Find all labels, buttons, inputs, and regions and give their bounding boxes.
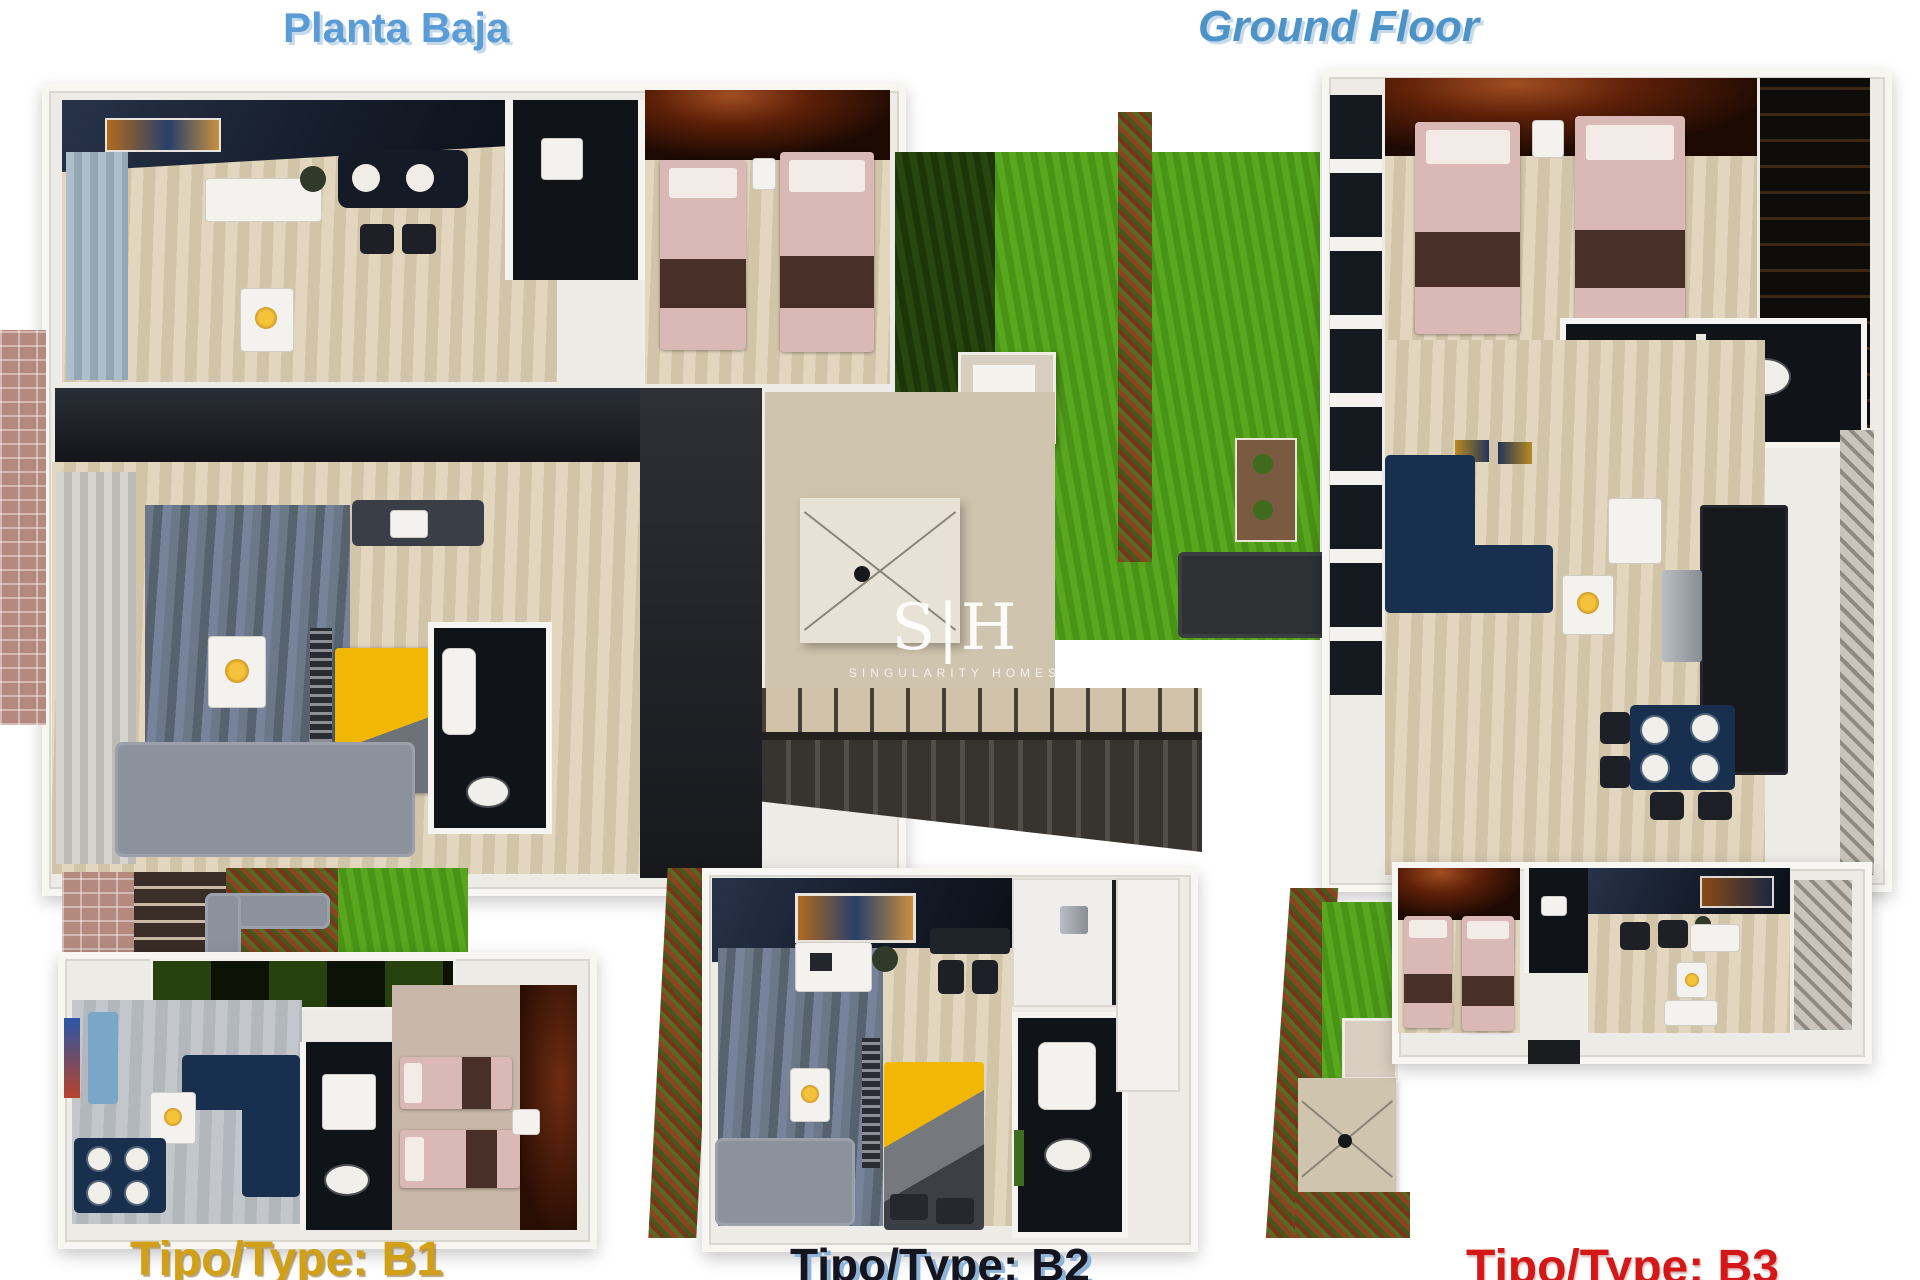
- basin-right: [406, 164, 434, 192]
- b3-bedroom-ceiling: [1398, 868, 1520, 920]
- b1-wall-art: [64, 1018, 80, 1098]
- bed-single: [1462, 916, 1514, 1031]
- bed-pillow: [1586, 125, 1674, 160]
- plate: [126, 1148, 148, 1170]
- window-band: [1330, 95, 1382, 695]
- fireplace-unit: [240, 288, 294, 352]
- b2-tv-art: [795, 893, 916, 943]
- bed-pillow: [1426, 130, 1510, 164]
- plan-b1-label: Tipo/Type: B1: [130, 1232, 443, 1280]
- bed-blanket: [1575, 230, 1685, 287]
- bed-pillow: [404, 1063, 422, 1103]
- bed-single: [660, 160, 746, 350]
- b2-shower: [1038, 1042, 1096, 1110]
- b2-slat-screen: [862, 1038, 880, 1168]
- plate: [1642, 717, 1668, 743]
- plate: [1642, 755, 1668, 781]
- bed-single: [1575, 116, 1685, 336]
- upper-bathroom: [505, 100, 646, 280]
- brand-name: SINGULARITY HOMES: [845, 666, 1065, 680]
- b2-wall-extension: [1116, 878, 1180, 1092]
- bed-pillow: [890, 1194, 928, 1220]
- umbrella-pole: [854, 566, 870, 582]
- potted-plant: [872, 946, 898, 972]
- fireplace-flame-icon: [164, 1108, 182, 1126]
- bed-blanket: [466, 1130, 497, 1188]
- laptop: [390, 510, 428, 538]
- b2-sofa: [715, 1138, 855, 1226]
- middle-corridor-roof: [55, 388, 640, 462]
- nightstand: [752, 158, 776, 190]
- bed-single: [1404, 916, 1452, 1028]
- dark-core-wall: [640, 388, 762, 878]
- upper-bedroom-ceiling: [645, 90, 890, 160]
- b1-bedroom-glow: [520, 985, 577, 1230]
- nightstand: [512, 1109, 540, 1135]
- toilet: [326, 1166, 368, 1194]
- b3-bench: [1664, 1000, 1718, 1026]
- fireplace-flame-icon: [801, 1085, 819, 1103]
- b1-outdoor-sofa: [205, 893, 241, 961]
- dining-chair: [1600, 756, 1630, 788]
- b3-living-ceiling: [1588, 868, 1790, 914]
- plate: [126, 1182, 148, 1204]
- plate: [88, 1182, 110, 1204]
- lower-bathroom: [428, 622, 552, 834]
- nightstand: [1532, 120, 1564, 158]
- table-plant: [1253, 454, 1273, 474]
- bar-stool: [972, 960, 998, 994]
- b1-brick-path: [62, 872, 134, 964]
- kitchen-island: [1608, 498, 1662, 564]
- sofa-navy-section: [1385, 545, 1553, 613]
- toilet: [468, 778, 508, 806]
- brick-wall-left: [0, 330, 46, 725]
- toilet: [1046, 1140, 1090, 1170]
- wall-mural: [105, 118, 221, 152]
- side-balcony-band: [1840, 430, 1874, 875]
- b2-bathroom: [1012, 1012, 1128, 1238]
- b3-sofa-white: [1690, 924, 1740, 952]
- b3-hedge-bottom: [1295, 1192, 1410, 1238]
- bed-pillow: [1409, 920, 1447, 938]
- chair: [360, 224, 394, 254]
- b1-bathroom: [300, 1042, 404, 1230]
- b3-storage-box: [1342, 1018, 1398, 1080]
- stair-handrail: [762, 732, 1202, 740]
- bed-blanket: [660, 259, 746, 308]
- page-title-english: Ground Floor: [1198, 2, 1479, 52]
- b1-sofa-section: [242, 1055, 300, 1197]
- watermark: S|H SINGULARITY HOMES: [845, 596, 1065, 680]
- bed-single: [400, 1057, 512, 1109]
- b3-bathroom: [1524, 868, 1594, 973]
- dining-chair: [1698, 792, 1732, 820]
- fireplace-unit: [1562, 575, 1614, 635]
- b2-desk: [795, 942, 872, 992]
- chair: [402, 224, 436, 254]
- brand-logo: S|H: [845, 596, 1065, 660]
- potted-plant: [300, 166, 326, 192]
- b3-balcony-band: [1794, 880, 1852, 1030]
- bed-pillow: [1467, 921, 1509, 939]
- fireplace-flame-icon: [1685, 973, 1699, 987]
- fireplace-unit: [208, 636, 266, 708]
- plan-b3-label: Tipo/Type: B3: [1466, 1240, 1779, 1280]
- b1-dining-table: [74, 1138, 166, 1213]
- page-title-spanish: Planta Baja: [283, 4, 509, 52]
- table-plant: [1253, 500, 1273, 520]
- umbrella-pole: [1338, 1134, 1352, 1148]
- plate: [1692, 755, 1718, 781]
- bed-blanket: [1404, 974, 1452, 1003]
- bed-blanket: [780, 256, 874, 308]
- fireplace-flame-icon: [255, 307, 277, 329]
- bathroom-fixture: [541, 138, 583, 180]
- b2-bed-yellow: [884, 1062, 984, 1230]
- bed-blanket: [1462, 976, 1514, 1006]
- upper-curtain-wall: [66, 152, 128, 380]
- b3-fireplace: [1676, 962, 1708, 998]
- floorplan-sheet: Planta Baja Ground Floor: [0, 0, 1920, 1280]
- b2-fireplace: [790, 1068, 830, 1122]
- b3-sink: [1541, 896, 1567, 916]
- plan-b2-label: Tipo/Type: B2: [790, 1238, 1090, 1280]
- bed-single: [780, 152, 874, 352]
- plate: [88, 1148, 110, 1170]
- shower: [442, 648, 476, 735]
- bed-pillow: [669, 168, 738, 198]
- dining-table: [1630, 705, 1735, 790]
- bed-pillow: [789, 160, 864, 192]
- b2-plant-strip: [1014, 1130, 1024, 1186]
- bed-single: [400, 1130, 520, 1188]
- laptop: [810, 953, 832, 971]
- b1-sink: [322, 1074, 376, 1130]
- b3-patio-umbrella: [1298, 1078, 1396, 1200]
- outdoor-sofa: [1178, 552, 1328, 638]
- bed-blanket: [1415, 232, 1520, 287]
- hall-rug: [1498, 442, 1532, 464]
- desk: [352, 500, 484, 546]
- stair-railing-wall: [762, 688, 1202, 736]
- b2-bar-counter: [930, 928, 1010, 954]
- b3-tv: [1700, 876, 1774, 908]
- sofa-grey: [115, 742, 415, 857]
- armchair: [1658, 920, 1688, 948]
- hedge-wall: [1118, 112, 1152, 562]
- dining-chair: [1650, 792, 1684, 820]
- dining-chair: [1600, 712, 1630, 744]
- b1-fireplace: [150, 1092, 196, 1144]
- b2-oven: [1060, 906, 1088, 934]
- armchair: [1620, 922, 1650, 950]
- basin-left: [352, 164, 380, 192]
- plate: [1692, 715, 1718, 741]
- b1-bedroom: [392, 985, 577, 1230]
- refrigerator: [1662, 570, 1702, 662]
- bed-blanket: [462, 1057, 491, 1109]
- bed-pillow: [405, 1137, 424, 1181]
- fireplace-flame-icon: [1577, 592, 1599, 614]
- bar-stool: [938, 960, 964, 994]
- b3-entry-door: [1528, 1040, 1580, 1064]
- bed-single: [1415, 122, 1520, 334]
- bed-pillow: [936, 1198, 974, 1224]
- fireplace-flame-icon: [225, 659, 249, 683]
- outdoor-table: [1235, 438, 1297, 542]
- b1-bench: [88, 1012, 118, 1104]
